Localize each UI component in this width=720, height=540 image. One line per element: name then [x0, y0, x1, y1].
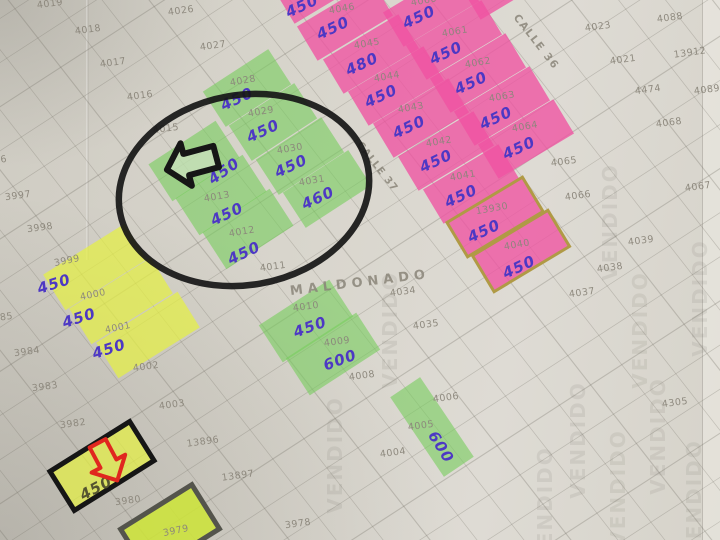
red-down-arrow-icon — [81, 434, 134, 489]
hand-annotations — [0, 0, 720, 540]
map-photo: VENDIDOVENDIDOVENDIDOVENDIDOVENDIDOVENDI… — [0, 0, 720, 540]
black-left-arrow-icon — [161, 135, 222, 191]
ellipse-annotation — [103, 75, 384, 306]
